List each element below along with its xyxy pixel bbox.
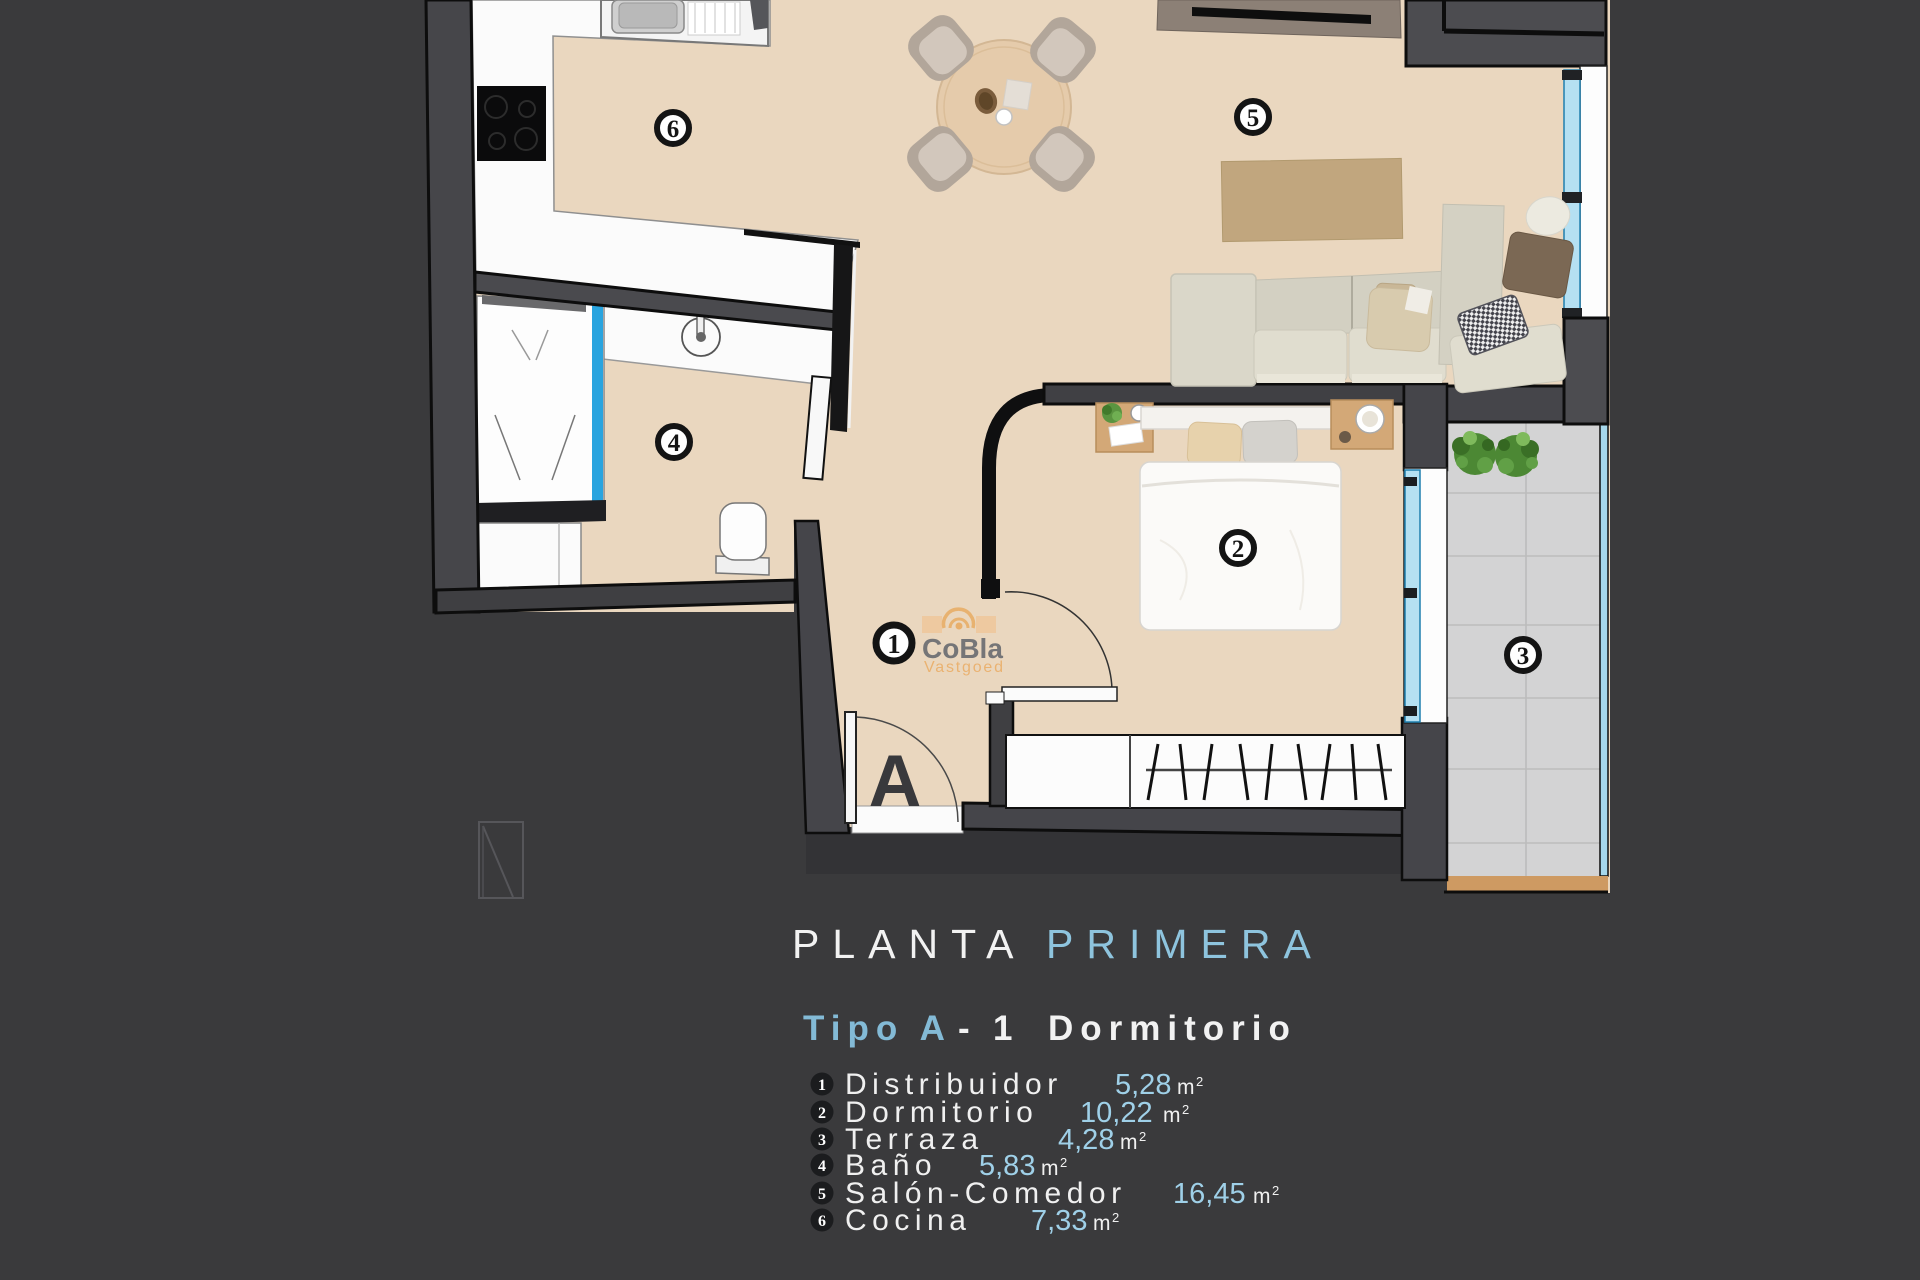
- svg-text:2: 2: [1060, 1155, 1067, 1170]
- svg-text:m: m: [1163, 1104, 1181, 1127]
- svg-text:16,45: 16,45: [1173, 1178, 1246, 1210]
- svg-text:A: A: [869, 741, 922, 822]
- svg-text:4: 4: [818, 1158, 826, 1175]
- svg-text:m: m: [1093, 1212, 1111, 1235]
- svg-text:7,33: 7,33: [1031, 1205, 1087, 1237]
- svg-text:2: 2: [818, 1105, 826, 1122]
- svg-text:2: 2: [1232, 536, 1245, 563]
- svg-text:2: 2: [1112, 1210, 1119, 1225]
- svg-text:3: 3: [1517, 643, 1530, 670]
- svg-text:-: -: [958, 1009, 977, 1048]
- svg-text:Dormitorio: Dormitorio: [1048, 1009, 1297, 1048]
- svg-text:2: 2: [1272, 1183, 1279, 1198]
- svg-text:6: 6: [667, 116, 680, 143]
- svg-text:1: 1: [887, 629, 901, 659]
- svg-text:4: 4: [668, 430, 681, 457]
- svg-text:2: 2: [1182, 1102, 1189, 1117]
- svg-text:1: 1: [818, 1077, 826, 1094]
- svg-text:5: 5: [818, 1186, 826, 1203]
- svg-text:5: 5: [1247, 105, 1260, 132]
- svg-text:4,28: 4,28: [1058, 1124, 1114, 1156]
- svg-text:Vastgoed: Vastgoed: [924, 659, 1005, 676]
- svg-text:Cocina: Cocina: [845, 1204, 971, 1237]
- svg-text:m: m: [1253, 1185, 1271, 1208]
- svg-text:PLANTA: PLANTA: [792, 921, 1026, 967]
- svg-text:Tipo A: Tipo A: [803, 1009, 952, 1048]
- svg-text:3: 3: [818, 1132, 826, 1149]
- svg-text:2: 2: [1139, 1129, 1146, 1144]
- svg-text:PRIMERA: PRIMERA: [1046, 921, 1324, 967]
- svg-text:m: m: [1177, 1076, 1195, 1099]
- svg-text:m: m: [1120, 1131, 1138, 1154]
- svg-text:6: 6: [818, 1213, 826, 1230]
- svg-text:2: 2: [1196, 1074, 1203, 1089]
- svg-text:1: 1: [993, 1009, 1019, 1048]
